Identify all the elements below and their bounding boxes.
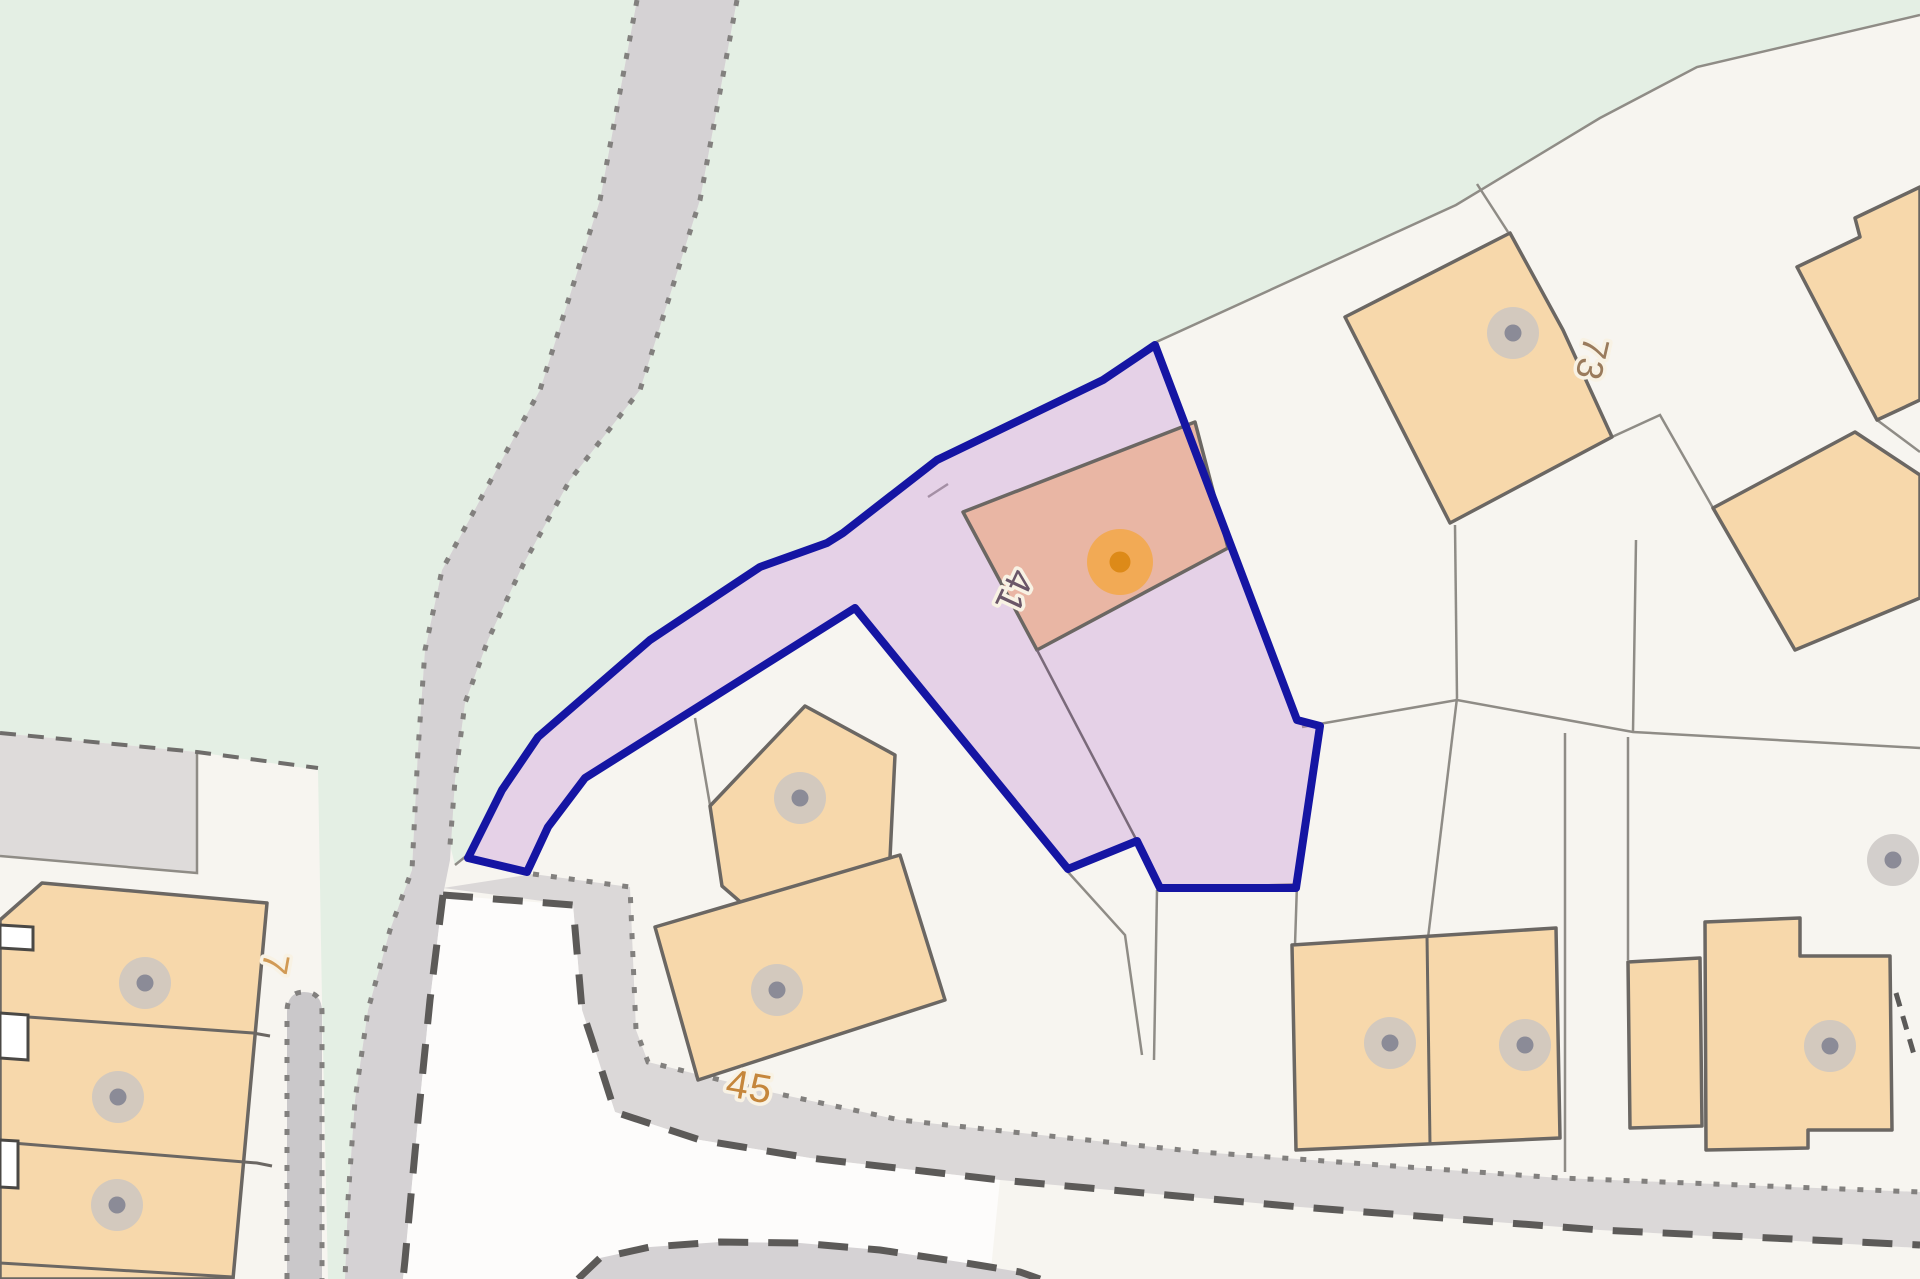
porch-3	[0, 1140, 18, 1188]
gray-dot-icon	[1804, 1020, 1856, 1072]
porch-1	[0, 925, 33, 950]
gray-dot-icon	[119, 957, 171, 1009]
gray-dot-icon	[774, 772, 826, 824]
footpath	[287, 992, 322, 1279]
gray-dot-icon	[1364, 1017, 1416, 1069]
map-viewport[interactable]: 41 73 45 7	[0, 0, 1920, 1279]
plot-label-45: 45	[723, 1061, 776, 1112]
porch-2	[0, 1013, 28, 1060]
gray-dot-icon	[91, 1179, 143, 1231]
map-canvas[interactable]: 41 73 45 7	[0, 0, 1920, 1279]
gray-dot-icon	[1487, 307, 1539, 359]
gray-dot-icon	[1867, 834, 1919, 886]
gray-dot-icon	[92, 1071, 144, 1123]
orange-dot-icon	[1087, 529, 1153, 595]
building-bottom-right-annex	[1628, 958, 1702, 1128]
gray-dot-icon	[751, 964, 803, 1016]
gray-parcel	[0, 733, 197, 873]
gray-dot-icon	[1499, 1019, 1551, 1071]
